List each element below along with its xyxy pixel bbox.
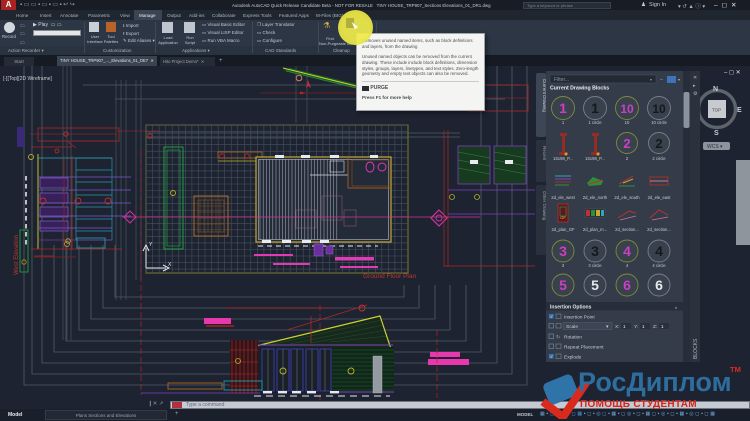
svg-text:6: 6 — [623, 277, 631, 293]
svg-text:WCS ▾: WCS ▾ — [707, 144, 723, 150]
svg-text:3: 3 — [591, 243, 599, 259]
svg-text:5: 5 — [591, 277, 599, 293]
svg-text:Repeat Placement: Repeat Placement — [564, 345, 604, 351]
svg-text:✓: ✓ — [550, 354, 553, 359]
svg-text:E: E — [737, 107, 742, 114]
svg-text:2d_ele_west: 2d_ele_west — [551, 195, 575, 200]
svg-text:↻: ↻ — [556, 335, 560, 341]
svg-text:2d_ele_north: 2d_ele_north — [583, 195, 608, 200]
svg-text:2d_ele_east: 2d_ele_east — [648, 195, 672, 200]
svg-text:10: 10 — [652, 102, 666, 116]
svg-text:X:: X: — [615, 324, 620, 330]
svg-text:✓: ✓ — [550, 314, 553, 319]
svg-text:▾: ▾ — [678, 77, 680, 82]
svg-text:4: 4 — [655, 243, 663, 259]
svg-text:GF: GF — [560, 215, 566, 220]
svg-text:1: 1 — [623, 324, 626, 330]
svg-text:Current Drawing Blocks: Current Drawing Blocks — [550, 86, 609, 92]
svg-text:⚙: ⚙ — [693, 91, 698, 97]
svg-text:4 circle: 4 circle — [652, 263, 666, 268]
svg-text:– ◻ ✕: – ◻ ✕ — [724, 70, 741, 76]
svg-text:Rotation: Rotation — [564, 335, 582, 341]
svg-text:West Elevation: West Elevation — [14, 235, 20, 275]
svg-text:Ground Floor Plan: Ground Floor Plan — [363, 273, 416, 280]
svg-text:N: N — [713, 86, 718, 93]
svg-text:1: 1 — [559, 100, 567, 116]
svg-text:Z:: Z: — [653, 324, 657, 330]
svg-text:15198_P...: 15198_P... — [553, 156, 573, 161]
svg-text:Insertion Point: Insertion Point — [564, 315, 595, 321]
svg-text:▾: ▾ — [650, 77, 652, 82]
svg-text:1: 1 — [642, 324, 645, 330]
svg-text:2: 2 — [655, 136, 662, 151]
svg-text:10: 10 — [620, 102, 634, 116]
svg-text:5: 5 — [559, 277, 567, 293]
svg-text:2 circle: 2 circle — [652, 156, 666, 161]
svg-text:3: 3 — [559, 243, 567, 259]
svg-text:▴: ▴ — [675, 305, 677, 310]
svg-text:2d_plan_GF: 2d_plan_GF — [551, 227, 574, 232]
svg-text:6: 6 — [655, 277, 663, 293]
svg-text:10: 10 — [625, 120, 630, 125]
svg-text:1: 1 — [591, 100, 599, 116]
svg-text:4: 4 — [623, 243, 631, 259]
svg-text:S: S — [714, 130, 719, 137]
svg-text:2d_section...: 2d_section... — [647, 227, 671, 232]
svg-text:2d_section...: 2d_section... — [615, 227, 639, 232]
svg-text:2: 2 — [623, 136, 630, 151]
svg-text:Y:: Y: — [634, 324, 638, 330]
svg-text:15198_P...: 15198_P... — [585, 156, 605, 161]
svg-text:2d_ele_south: 2d_ele_south — [614, 195, 640, 200]
svg-text:Insertion Options: Insertion Options — [550, 305, 592, 311]
svg-text:Filter...: Filter... — [554, 77, 569, 83]
svg-text:✕: ✕ — [693, 75, 697, 81]
svg-text:3 circle: 3 circle — [588, 263, 602, 268]
svg-text:–: – — [660, 77, 663, 83]
svg-text:1: 1 — [661, 324, 664, 330]
svg-text:BLOCKS: BLOCKS — [693, 338, 699, 359]
svg-text:Scale: Scale — [566, 324, 578, 330]
svg-text:1 circle: 1 circle — [588, 120, 602, 125]
svg-text:2d_plan_m...: 2d_plan_m... — [583, 227, 607, 232]
svg-text:Explode: Explode — [564, 355, 582, 361]
svg-text:TOP: TOP — [712, 108, 721, 113]
svg-text:10 circle: 10 circle — [651, 120, 667, 125]
